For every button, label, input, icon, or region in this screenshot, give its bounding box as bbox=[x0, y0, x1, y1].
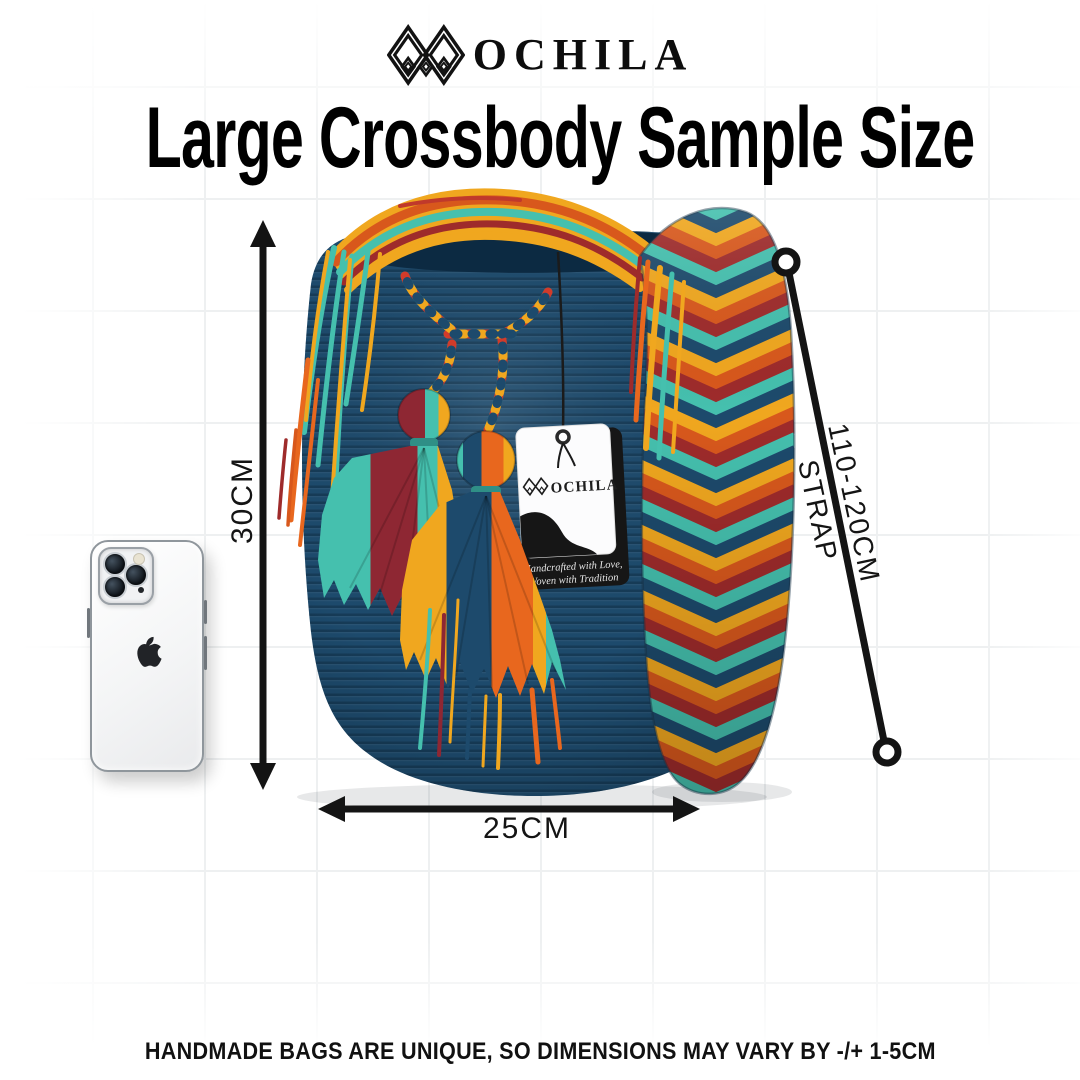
infographic-canvas: OCHILA Large Crossbody Sample Size bbox=[0, 0, 1080, 1080]
phone-for-scale bbox=[90, 540, 204, 772]
camera-lens-icon bbox=[103, 575, 127, 599]
phone-camera-module bbox=[98, 547, 154, 605]
footer-note: HANDMADE BAGS ARE UNIQUE, SO DIMENSIONS … bbox=[145, 1038, 936, 1066]
page-title-wrap: Large Crossbody Sample Size bbox=[0, 92, 1080, 184]
camera-lens-icon bbox=[124, 563, 148, 587]
side-button bbox=[87, 608, 90, 638]
side-button bbox=[204, 636, 207, 670]
hang-tag: OCHILA Handcrafted with Love, Woven with… bbox=[515, 423, 630, 590]
brand-wordmark: OCHILA bbox=[473, 33, 693, 77]
page-title: Large Crossbody Sample Size bbox=[146, 88, 975, 187]
camera-flash-icon bbox=[133, 553, 145, 565]
brand-logo: OCHILA bbox=[0, 24, 1080, 86]
mochila-m-logo-icon bbox=[387, 24, 465, 86]
side-button bbox=[204, 600, 207, 624]
lidar-dot-icon bbox=[138, 587, 144, 593]
height-label: 30CM bbox=[226, 456, 260, 544]
chevron-strap bbox=[640, 208, 794, 794]
hang-tag-hole bbox=[557, 431, 570, 444]
apple-logo-icon bbox=[132, 634, 162, 670]
footer-note-wrap: HANDMADE BAGS ARE UNIQUE, SO DIMENSIONS … bbox=[0, 1038, 1080, 1066]
width-label: 25CM bbox=[483, 812, 571, 846]
